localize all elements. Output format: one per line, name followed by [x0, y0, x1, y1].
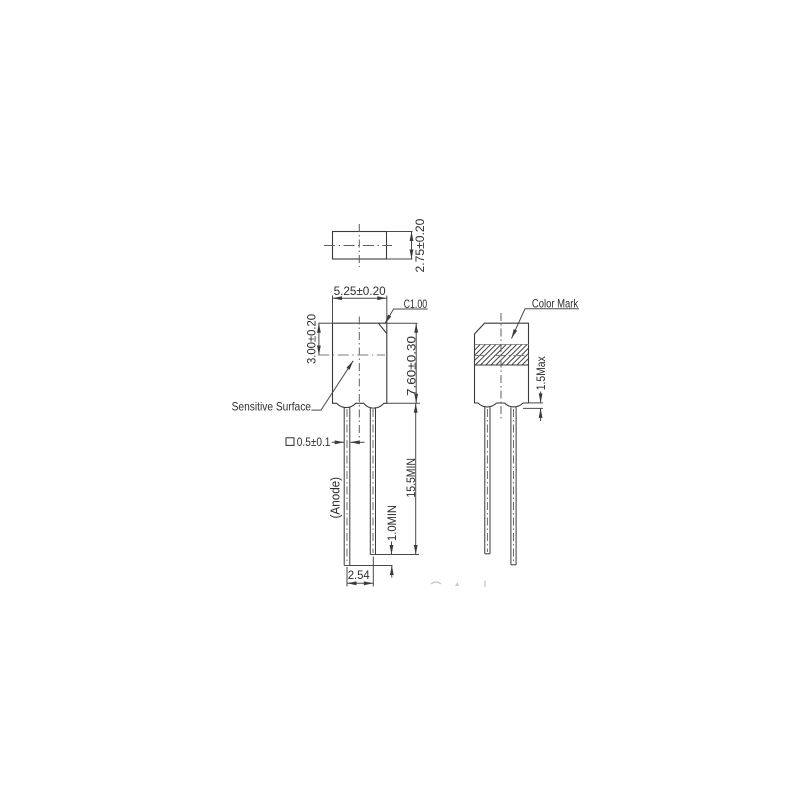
svg-text:2.54: 2.54	[348, 568, 370, 582]
svg-text:2.75±0.20: 2.75±0.20	[413, 219, 427, 273]
svg-text:Sensitive Surface: Sensitive Surface	[232, 400, 312, 414]
svg-text:3.00±0.20: 3.00±0.20	[305, 314, 319, 364]
svg-text:1.0MIN: 1.0MIN	[385, 505, 399, 541]
svg-text:7.60±0.30: 7.60±0.30	[404, 336, 418, 396]
svg-text:0.5±0.1: 0.5±0.1	[297, 435, 331, 449]
svg-text:15.5MIN: 15.5MIN	[404, 458, 418, 498]
svg-text:5.25±0.20: 5.25±0.20	[334, 284, 386, 298]
svg-text:(Anode): (Anode)	[328, 477, 343, 519]
svg-text:1.5Max: 1.5Max	[534, 356, 548, 390]
